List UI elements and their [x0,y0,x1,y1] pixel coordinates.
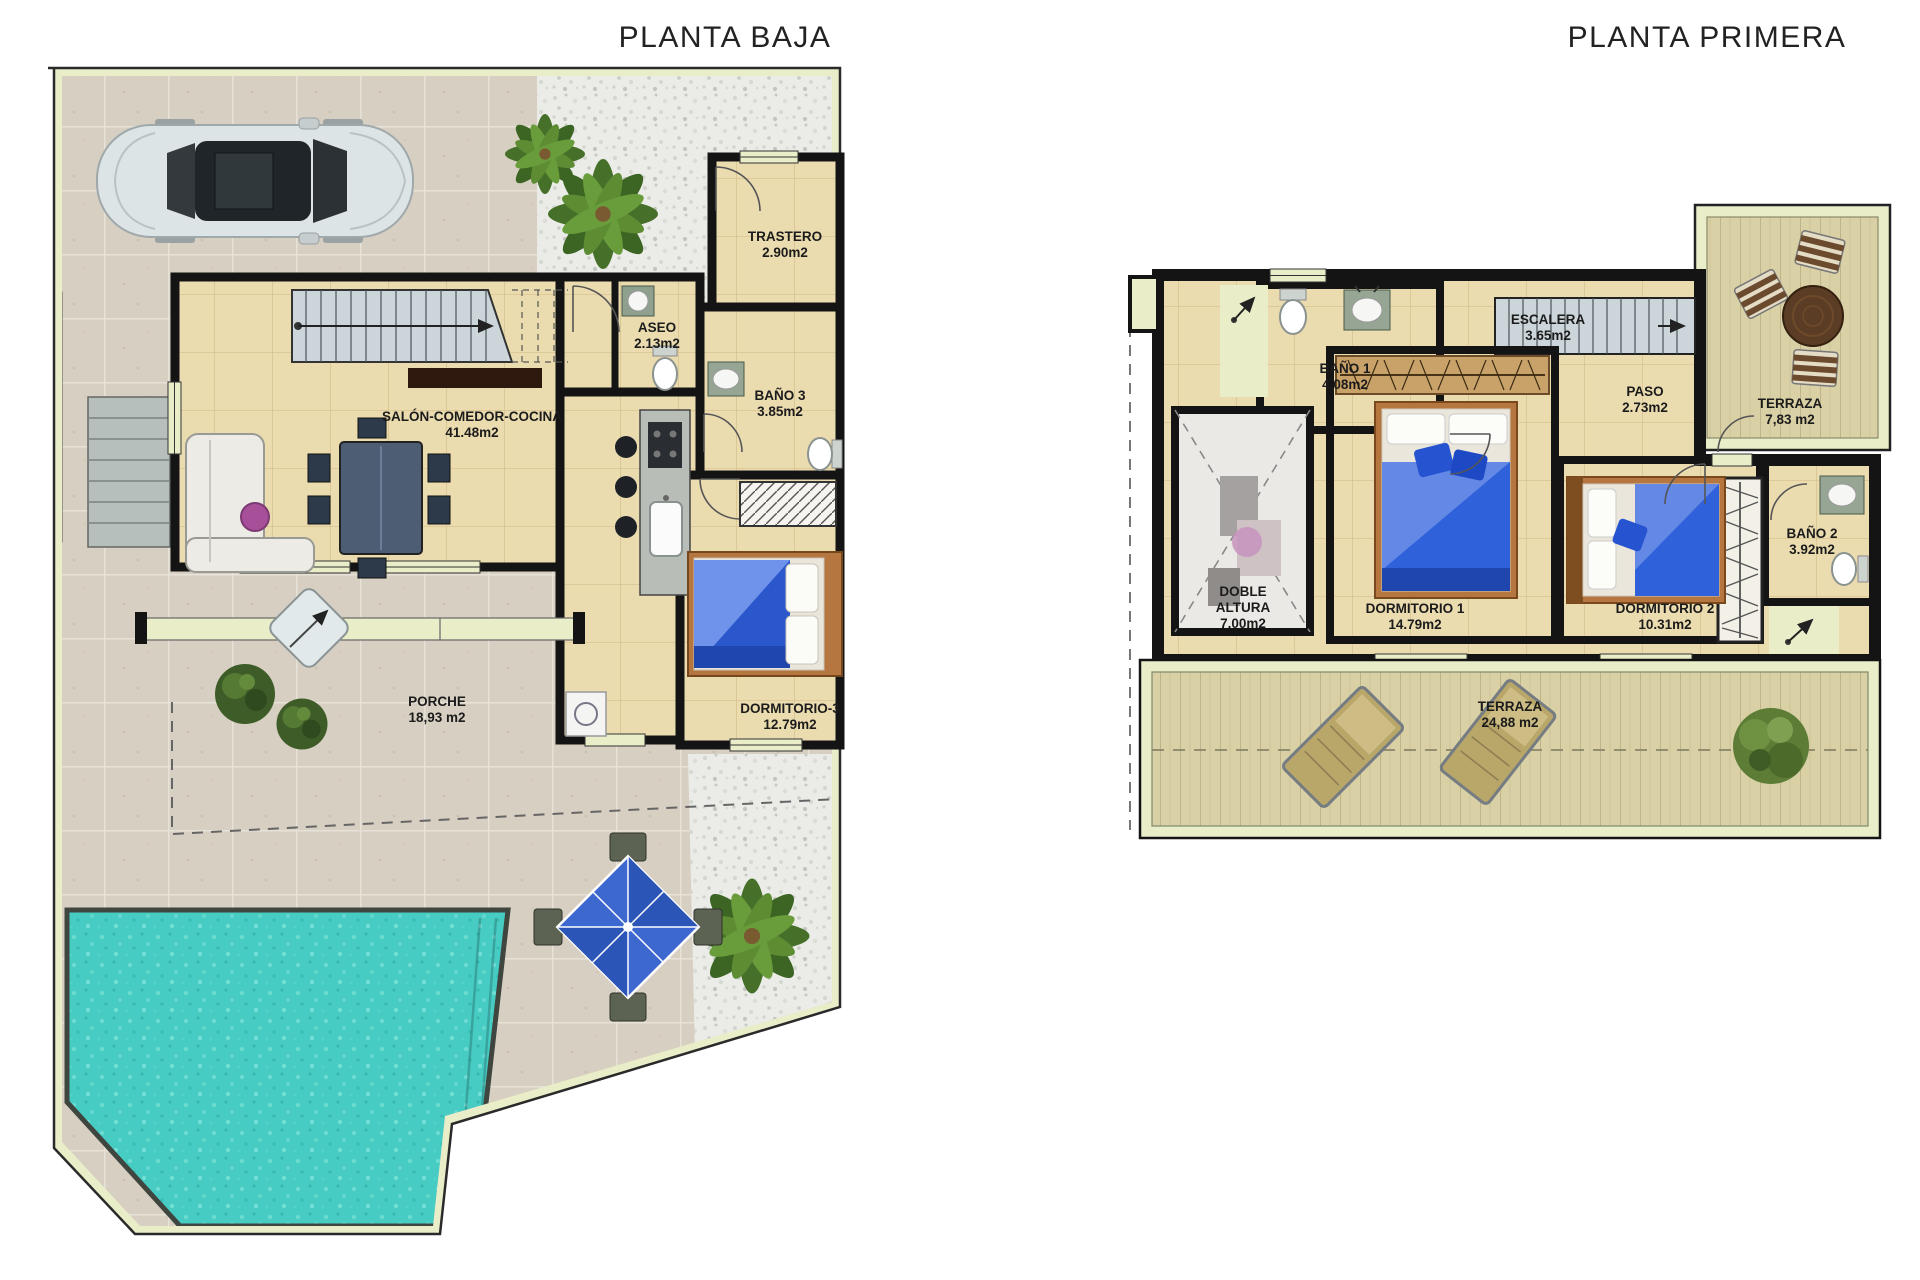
terrace-chair [1792,350,1838,387]
bed-dormitorio1 [1375,402,1517,598]
room-label-salon: SALÓN-COMEDOR-COCINA 41.48m2 [382,409,562,441]
terrace-plant [1733,708,1809,784]
sideboard [408,368,542,388]
plan-title-baja: PLANTA BAJA [619,21,832,55]
exterior-stairs [88,397,170,547]
floorplan-sheet: PLANTA BAJA PLANTA PRIMERA TRASTERO 2.90… [0,0,1920,1280]
watermark: j JJ PROPERTIES [830,591,1090,678]
porch-step [140,618,580,640]
room-label-porche: PORCHE 18,93 m2 [408,694,466,726]
planta-baja-plan [46,68,842,1234]
palm-tree-icon [548,159,658,269]
entry-landing [1220,285,1268,397]
room-label-bano1: BAÑO 1 4.08m2 [1319,361,1370,393]
bed-dormitorio3 [688,552,842,676]
car [97,118,413,244]
room-label-dormitorio3: DORMITORIO-3 12.79m2 [740,701,840,733]
shrub-icon [215,664,275,724]
room-label-dormitorio1: DORMITORIO 1 14.79m2 [1366,601,1465,633]
watermark-label: JJ PROPERTIES [830,660,1090,678]
room-label-bano3: BAÑO 3 3.85m2 [754,388,805,420]
washing-machine [566,692,606,736]
watermark-letter: j [953,599,967,646]
room-label-dormitorio2: DORMITORIO 2 10.31m2 [1616,601,1715,633]
room-label-bano2: BAÑO 2 3.92m2 [1786,526,1837,558]
room-label-terraza-alta: TERRAZA 7,83 m2 [1758,396,1823,428]
room-label-trastero: TRASTERO 2.90m2 [748,229,822,261]
plan-title-primera: PLANTA PRIMERA [1568,21,1847,55]
lower-terrace [1140,660,1880,838]
terrace-access-nook [1769,606,1839,654]
room-label-terraza-baja: TERRAZA 24,88 m2 [1478,699,1543,731]
room-label-paso: PASO 2.73m2 [1622,384,1668,416]
bed-dormitorio2 [1567,477,1725,603]
shrub-icon [277,699,328,750]
room-label-doble-altura: DOBLE ALTURA 7.00m2 [1208,584,1278,632]
planta-primera-plan [1130,205,1890,838]
room-label-aseo: ASEO 2.13m2 [634,320,680,352]
room-label-escalera: ESCALERA 3.65m2 [1511,312,1585,344]
pouf [241,503,269,531]
wardrobe [740,482,836,526]
